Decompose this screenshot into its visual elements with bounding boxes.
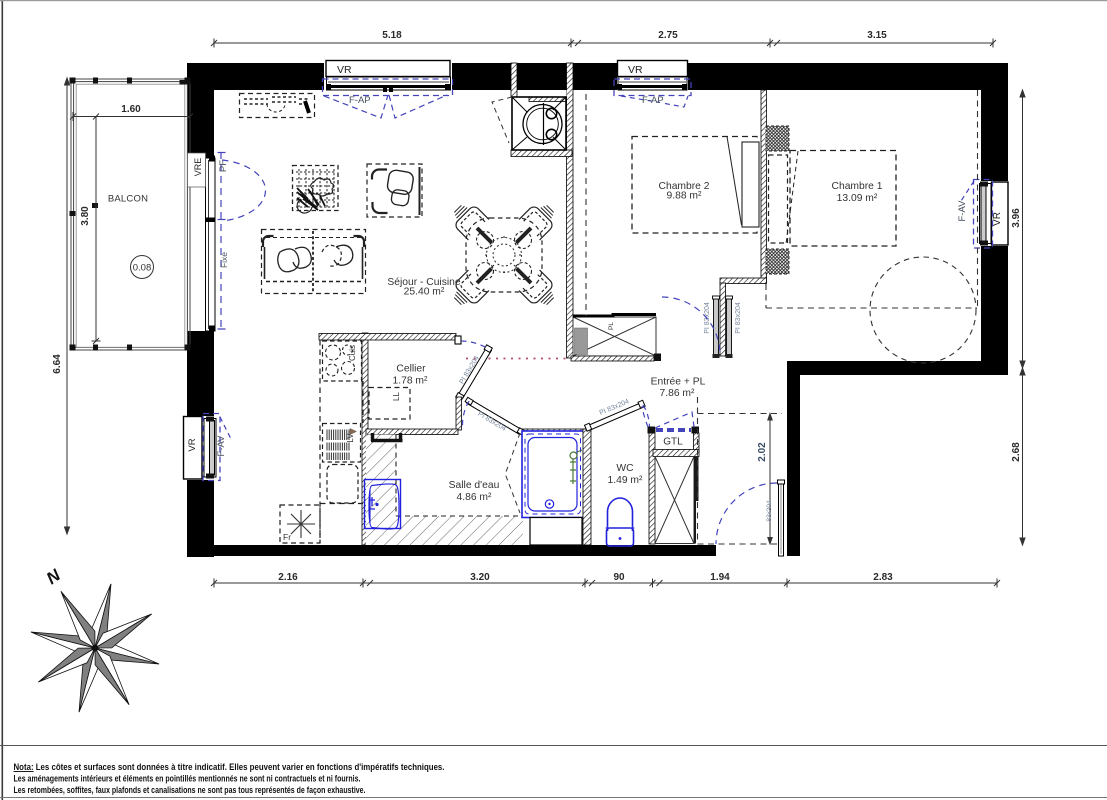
svg-text:VR: VR bbox=[337, 64, 352, 76]
svg-text:90: 90 bbox=[613, 572, 625, 583]
svg-text:BALCON: BALCON bbox=[108, 194, 148, 205]
svg-text:13.09 m²: 13.09 m² bbox=[837, 193, 878, 204]
svg-text:Entrée + PL: Entrée + PL bbox=[651, 377, 706, 388]
svg-text:25.40 m²: 25.40 m² bbox=[404, 287, 445, 298]
svg-text:Fixe: Fixe bbox=[219, 252, 229, 268]
svg-text:83x204: 83x204 bbox=[766, 500, 773, 522]
svg-text:1.78 m²: 1.78 m² bbox=[393, 376, 428, 387]
svg-text:VR: VR bbox=[992, 212, 1003, 226]
svg-text:PI 83x204: PI 83x204 bbox=[704, 302, 711, 334]
svg-text:F-AP: F-AP bbox=[642, 95, 664, 106]
svg-text:1.49 m²: 1.49 m² bbox=[608, 475, 643, 486]
svg-text:F-AV: F-AV bbox=[216, 435, 227, 457]
svg-text:2.75: 2.75 bbox=[658, 30, 678, 41]
svg-text:Cellier: Cellier bbox=[396, 364, 426, 375]
svg-text:1.94: 1.94 bbox=[710, 572, 730, 583]
svg-text:F-AP: F-AP bbox=[349, 95, 371, 106]
svg-text:0.08: 0.08 bbox=[133, 263, 152, 274]
svg-text:6.64: 6.64 bbox=[52, 354, 63, 374]
svg-text:LV: LV bbox=[346, 433, 355, 443]
svg-text:2.16: 2.16 bbox=[278, 572, 298, 583]
svg-text:GTL: GTL bbox=[663, 437, 683, 448]
svg-text:3.80: 3.80 bbox=[80, 206, 91, 226]
svg-text:Salle d'eau: Salle d'eau bbox=[449, 480, 500, 491]
svg-text:Les retombées, soffites, faux: Les retombées, soffites, faux plafonds e… bbox=[14, 785, 366, 796]
svg-text:VR: VR bbox=[187, 438, 198, 451]
svg-text:7.86 m²: 7.86 m² bbox=[660, 388, 695, 399]
svg-text:2.68: 2.68 bbox=[1011, 442, 1022, 462]
svg-text:9.88 m²: 9.88 m² bbox=[667, 191, 702, 202]
svg-text:Nota: Les côtes et surfaces so: Nota: Les côtes et surfaces sont données… bbox=[14, 762, 445, 773]
svg-text:F-AV: F-AV bbox=[957, 200, 968, 222]
svg-text:PF: PF bbox=[218, 160, 229, 172]
svg-text:LL: LL bbox=[392, 392, 401, 401]
svg-text:Chambre 1: Chambre 1 bbox=[832, 181, 883, 192]
svg-text:3.20: 3.20 bbox=[470, 572, 490, 583]
svg-text:Fr: Fr bbox=[283, 532, 291, 542]
svg-text:1.60: 1.60 bbox=[121, 104, 141, 115]
svg-text:5.18: 5.18 bbox=[382, 30, 402, 41]
svg-text:2.02: 2.02 bbox=[757, 442, 768, 462]
svg-text:VR: VR bbox=[628, 64, 643, 76]
svg-text:VRE: VRE bbox=[193, 158, 203, 177]
svg-text:2.83: 2.83 bbox=[873, 572, 893, 583]
svg-text:3.15: 3.15 bbox=[867, 30, 887, 41]
svg-text:PL: PL bbox=[608, 322, 615, 330]
svg-text:Les aménagements intérieurs et: Les aménagements intérieurs et éléments … bbox=[14, 774, 361, 785]
svg-text:3.96: 3.96 bbox=[1011, 208, 1022, 228]
svg-text:PI 83x204: PI 83x204 bbox=[735, 302, 742, 334]
svg-text:WC: WC bbox=[616, 463, 634, 474]
svg-text:4.86 m²: 4.86 m² bbox=[457, 492, 492, 503]
svg-text:Cuis: Cuis bbox=[348, 345, 357, 361]
